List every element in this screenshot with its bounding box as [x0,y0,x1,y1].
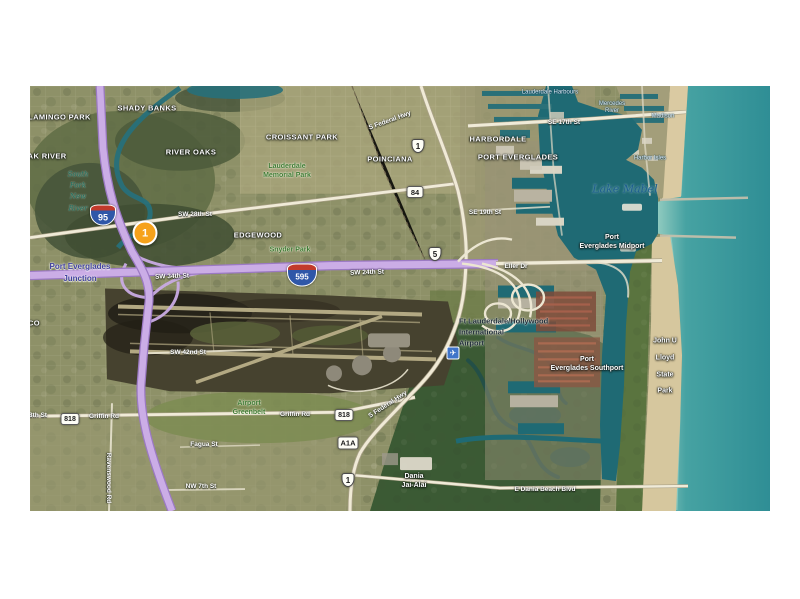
screenshot-page: { "colors": { "marker_orange": "#F6A21B"… [0,0,800,599]
map-canvas[interactable]: Shady BanksFlamingo ParkOak RiverRiver O… [30,86,770,511]
golf-greenbelt [145,391,375,443]
container-yards [534,292,600,388]
airport-grounds [103,289,458,394]
jai-alai-building [400,457,432,470]
satellite-map-art [30,86,770,511]
map-marker-1[interactable]: 1 [133,221,158,246]
